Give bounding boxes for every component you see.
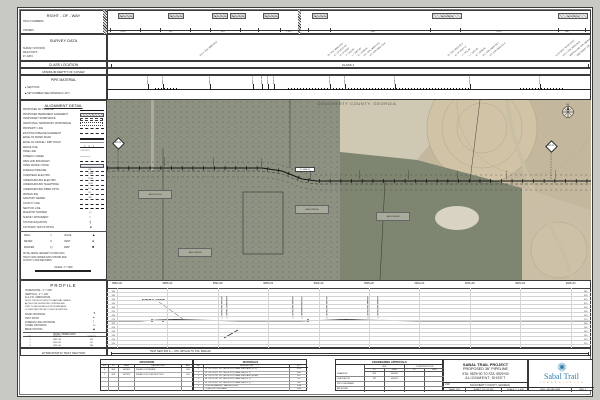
- profile-plot-graphics: [107, 280, 591, 348]
- owner-label-box: GA-DO-282.000: [295, 205, 329, 214]
- owner-label-box: GA-DO-280.000: [178, 248, 212, 257]
- sym-glyph: ┼: [89, 220, 91, 224]
- alignment-sheet-page: RIGHT - OF - WAY TRACT NUMBERS OWNERS SU…: [0, 0, 600, 400]
- crossing-label: IRRIGATION PIVOT TRACK: [301, 296, 304, 315]
- legend-symbol: [80, 127, 104, 131]
- sym-letter: OHE: [88, 173, 94, 175]
- pipe-callout-label: 9896+02 SET 1: [273, 76, 276, 85]
- sym-line: [80, 128, 104, 129]
- hydro-value: TEST SECTION 9 — STA. 9879+00 TO STA. 99…: [148, 350, 213, 353]
- profile-elevation-left: 290: [108, 311, 115, 313]
- row-label-right-of-way: RIGHT - OF - WAY TRACT NUMBERS OWNERS: [20, 10, 107, 34]
- sym-box: [80, 164, 104, 168]
- row-distance-label: 986': [560, 31, 574, 33]
- row-tick: [160, 28, 161, 33]
- legend2-label: DRIP: [64, 246, 70, 249]
- profile-elevation-left: 220: [108, 339, 115, 341]
- map-station-label: 9915+00: [457, 168, 460, 179]
- profile-note-line: NOTE: PROFILE DEPICTS NATURAL GRADE: [25, 300, 71, 302]
- profile-elevation-right: 330: [584, 295, 591, 297]
- profile-grid-horizontal: [107, 292, 591, 293]
- legend2-glyph: ●: [92, 239, 94, 243]
- row-distance-label: 3,214': [492, 31, 506, 33]
- row-tick: [190, 28, 191, 33]
- profile-station-label: 9925+00: [562, 282, 580, 285]
- crossing-label: EXISTING DIRT ROAD: [221, 296, 224, 315]
- row-tick: [110, 28, 111, 33]
- legend2-label: VENT: [64, 240, 70, 243]
- profile-legend-glyph: ●: [93, 316, 95, 319]
- legend-item-label: ADDITIONAL TEMPORARY WORKSPACE: [23, 122, 78, 125]
- pipe-callout-label: 9895+40 SET 2: [267, 76, 270, 85]
- profile-grid-horizontal: [107, 300, 591, 301]
- tract-numbers-sublabel: TRACT NUMBERS: [23, 20, 44, 23]
- hydro-baseline: [111, 353, 589, 354]
- legend-item-label: EDGE OF GRAVEL / DIRT ROAD: [23, 141, 78, 144]
- sym-scallop: ∩∩∩∩∩∩: [80, 149, 89, 152]
- profile-grid-vertical: [419, 288, 420, 348]
- legend-symbol: [80, 160, 104, 164]
- sabal-trail-starburst-icon: [557, 362, 567, 372]
- profile-info-box: PROFILE HORIZONTAL: 1" = 600' VERTICAL: …: [20, 280, 107, 348]
- row-tick: [330, 28, 331, 33]
- materials-table-cell: TOTAL PIPE THIS SHEET: [204, 388, 290, 391]
- profile-grid-horizontal: [107, 336, 591, 337]
- crossing-label: PROP. TEMP ACCESS ROAD: [226, 296, 229, 315]
- legend-symbol: [80, 136, 104, 140]
- profile-legend-label: CASED CROSSING: [25, 324, 47, 327]
- legend-item-label: COUNTY LINE: [23, 202, 78, 205]
- tract-number-box: GA-DO-282.000: [230, 13, 246, 19]
- profile-elevation-left: 320: [108, 299, 115, 301]
- compass-north-label: N: [567, 103, 569, 107]
- row-label-min-depth: MINIMUM DEPTH OF COVER: [20, 68, 107, 75]
- profile-grid-horizontal: [107, 340, 591, 341]
- sym-glyph: ◇: [89, 210, 91, 214]
- legend-item-label: UNDERGROUND FIBER OPTIC: [23, 188, 78, 191]
- approvals-cell: [404, 387, 424, 392]
- right-of-way-title: RIGHT - OF - WAY: [21, 13, 106, 18]
- legend-note-line: COUNTY LAND RECORDS.: [23, 260, 52, 262]
- scale-cell: SCALE: 1" = 600': [502, 387, 529, 392]
- profile-elevation-right: 280: [584, 315, 591, 317]
- crossing-label: EXISTING FIELD ROAD: [292, 296, 295, 315]
- profile-elevation-right: 240: [584, 331, 591, 333]
- sym-letter: UGT: [88, 183, 94, 185]
- pipe-callout-tick: [163, 84, 164, 90]
- profile-elevation-left: 330: [108, 295, 115, 297]
- approvals-cell: [424, 387, 444, 392]
- profile-grid-horizontal: [107, 344, 591, 345]
- legend-scale-bar: [35, 270, 91, 272]
- pipe-callout-label: 9889+62 SET 1: [209, 76, 212, 85]
- profile-station-label: 9915+00: [461, 282, 479, 285]
- survey-data-title: SURVEY DATA: [21, 38, 106, 43]
- legend-item-label: TEMPORARY WORKSPACE: [23, 117, 78, 120]
- profile-grid-vertical: [470, 288, 471, 348]
- row-tick: [585, 28, 586, 33]
- legend-symbol: ~~~~~~: [80, 155, 104, 159]
- sym-dot: [91, 128, 92, 129]
- legend-item-label: PROPOSED 36" PIPELINE: [23, 108, 78, 111]
- map-station-label: 9895+00: [261, 156, 264, 167]
- hydro-tick-right: [588, 352, 589, 356]
- map-station-label: 9885+00: [164, 155, 167, 166]
- map-station-label: 9905+00: [359, 168, 362, 179]
- row-label-class-location: CLASS LOCATION: [20, 61, 107, 68]
- materials-table-cell: 5,000': [290, 388, 308, 391]
- sym-line: [80, 199, 104, 200]
- profile-elevation-right: 340: [584, 291, 591, 293]
- profile-elevation-right: 300: [584, 307, 591, 309]
- row-label-survey-data: SURVEY DATA SURVEY STATIONS MILE POSTS P…: [20, 34, 107, 61]
- pipe-callout-label: 9922+91 SET 1: [539, 76, 542, 85]
- row-tick: [258, 28, 259, 33]
- sym-letter: FP: [88, 169, 92, 171]
- bore-table-cell: 9907+81: [37, 342, 77, 344]
- sym-line: [80, 204, 104, 205]
- profile-elevation-right: 250: [584, 327, 591, 329]
- profile-legend-label: TEST POINT: [25, 317, 39, 320]
- profile-station-label: 9890+00: [209, 282, 227, 285]
- bore-table-cell: 3: [23, 345, 37, 347]
- pipe-callout-tick: [395, 84, 396, 90]
- map-station-label: 9925+00: [555, 168, 558, 179]
- approvals-cell: [384, 387, 404, 392]
- profile-legend-glyph: ▼: [93, 312, 96, 315]
- map-station-label: 9900+00: [310, 168, 313, 179]
- profile-grid-horizontal: [107, 324, 591, 325]
- profile-station-label: 9880+00: [108, 282, 126, 285]
- legend-symbol: FO: [80, 188, 104, 192]
- legend-item-label: PROPOSED PERMANENT EASEMENT: [23, 113, 78, 116]
- bore-table-cell: 120': [77, 339, 106, 341]
- sym-glyph: ■: [90, 226, 92, 230]
- sym-line: [80, 194, 104, 195]
- legend2-label: METER: [24, 240, 32, 243]
- materials-table: MATERIALSSETDESCRIPTIONQTY.136" OD x 0.6…: [193, 359, 307, 391]
- map-dirt-road: [151, 100, 154, 170]
- map-station-label: 9910+00: [408, 168, 411, 179]
- pipe-callout-label: 9903+18 SET 2: [344, 76, 347, 85]
- profile-datum: N.A.V.D. 1988 DATUM: [25, 296, 50, 299]
- legend-item-label: PROPERTY LINE: [23, 127, 78, 130]
- pipe-callout-label: 9894+88 SET 3: [261, 76, 264, 85]
- profile-note-line: COVER PER PROJECT SPECIFICATIONS.: [25, 309, 68, 311]
- sym-line: [80, 175, 104, 176]
- pipe-callout-label: 9915+80 SET 2: [469, 76, 472, 85]
- owner-label-box: GA-DO-283.000: [376, 212, 410, 221]
- legend-symbol: [80, 117, 104, 121]
- pipe-callout-label: 9884+55 SET 2: [162, 76, 165, 85]
- sym-letter: FO: [88, 188, 92, 190]
- survey-stations-sublabel: SURVEY STATIONS: [23, 47, 45, 50]
- approvals-cell: [364, 387, 384, 392]
- profile-elevation-left: 210: [108, 343, 115, 345]
- rev-cell: REV: 1: [572, 387, 594, 392]
- legend-scale-text: SCALE: 1" = 600': [23, 266, 104, 269]
- profile-grid-horizontal: [107, 308, 591, 309]
- pipe-callout-tick: [345, 84, 346, 90]
- milepost-label-mp89: MP 89: [544, 145, 558, 147]
- legend-item-label: OPEN WATER / POND: [23, 164, 78, 167]
- logo-name: Sabal Trail: [529, 372, 594, 381]
- profile-station-label: 9905+00: [360, 282, 378, 285]
- logo-sub: T R A N S M I S S I O N: [529, 382, 594, 384]
- map-station-label: 9890+00: [213, 155, 216, 166]
- revisions-table-cell: [135, 387, 182, 392]
- profile-grid-horizontal: [107, 312, 591, 313]
- profile-elevation-right: 210: [584, 343, 591, 345]
- legend2-glyph: ■: [92, 245, 94, 249]
- survey-data-strip: P.O.T. STA. 9888+50.0P.I. STA. 9896+45.8…: [107, 34, 591, 61]
- legend2-glyph: ○: [50, 233, 52, 237]
- row-tick: [430, 28, 431, 33]
- row-baseline: [107, 30, 591, 31]
- legend-item-label: FENCE LINE: [23, 146, 78, 149]
- legend2-glyph: ▲: [92, 233, 95, 237]
- profile-elevation-left: 260: [108, 323, 115, 325]
- legend-symbol: [80, 113, 104, 117]
- pipe-callout-label: 9893+95 SET 3: [252, 76, 255, 85]
- legend2-glyph: ◇: [50, 245, 53, 249]
- pipe-callout-tick: [262, 84, 263, 90]
- profile-elevation-left: 280: [108, 315, 115, 317]
- profile-elevation-right: 270: [584, 319, 591, 321]
- crossing-label: EXISTING FARM DITCH: [367, 296, 370, 315]
- legend-item-label: STREAM / CREEK: [23, 155, 78, 158]
- pipe-material-dots: [288, 88, 470, 90]
- legend-symbol: [80, 207, 104, 211]
- pipe-callout-tick: [253, 84, 254, 90]
- sym-line: [80, 180, 104, 181]
- pipe-callout-tick: [330, 84, 331, 90]
- row-tick: [558, 28, 559, 33]
- sym-box: [80, 122, 103, 125]
- legend-item-label: WATER LINE: [23, 193, 78, 196]
- legend-note-line: NOTE: AERIAL IMAGERY FLOWN 2013.: [23, 253, 65, 255]
- sym-line: [80, 208, 104, 209]
- title-line-1: SABAL TRAIL PROJECT: [444, 362, 527, 367]
- legend-symbol: ■: [80, 226, 104, 230]
- profile-elevation-left: 240: [108, 331, 115, 333]
- profile-station-label: 9900+00: [310, 282, 328, 285]
- profile-elevation-right: 310: [584, 303, 591, 305]
- row-distance-label: 1,023': [116, 31, 130, 33]
- county-label: DOUGHERTY COUNTY, GEORGIA: [282, 101, 432, 106]
- profile-grid-vertical: [218, 288, 219, 348]
- crossing-label: EXISTING FIELD ROAD: [377, 296, 380, 315]
- materials-table-cell: [194, 388, 204, 391]
- hydro-title: HYDROSTATIC TEST SECTION: [21, 349, 106, 357]
- year-cell: YEAR: 2017: [444, 387, 466, 392]
- tract-number-box: GA-DO-280.000: [168, 13, 184, 19]
- profile-elevation-left: 270: [108, 319, 115, 321]
- row-tick: [210, 28, 211, 33]
- bore-table-colhead: STATION: [37, 336, 77, 338]
- legend-item-label: WETLAND BOUNDARY: [23, 160, 78, 163]
- tract-number-box: GA-DO-279.000: [118, 13, 134, 19]
- map-pond: [435, 206, 479, 230]
- owner-label-box: GA-DO-279.000: [138, 190, 172, 199]
- legend2-label: WELL: [24, 234, 31, 237]
- legend-symbol: W: [80, 193, 104, 197]
- profile-grid-vertical: [571, 288, 572, 348]
- row-distance-label: 418': [216, 31, 230, 33]
- approvals-table: ENGINEERING APPROVALSBIDCONSTRUCTIONBYDA…: [335, 359, 443, 391]
- sym-line: [80, 142, 104, 143]
- row-tick: [240, 28, 241, 33]
- profile-grid-horizontal: [107, 320, 591, 321]
- revisions-table-cell: [109, 387, 119, 392]
- legend-item-label: EDGE OF PAVED ROAD: [23, 136, 78, 139]
- sym-line: [80, 185, 104, 186]
- bore-table-cell: 140': [77, 345, 106, 347]
- profile-legend-glyph: ▭: [93, 324, 95, 327]
- row-label-pipe-material: PIPE MATERIAL ● SECTIONS ■ SET NUMBER (S…: [20, 75, 107, 100]
- hydro-tick-left: [111, 352, 112, 356]
- legend-symbol: SS: [80, 197, 104, 201]
- legend-symbol: ··: [80, 202, 104, 206]
- legend-item-label: STATION EQUATION: [23, 221, 78, 224]
- pipe-callout-tick: [268, 84, 269, 90]
- title-block: SABAL TRAIL PROJECT PROPOSED 36" PIPELIN…: [443, 359, 528, 391]
- legend-symbol: [80, 164, 104, 168]
- class-location-strip: CLASS 1: [107, 61, 591, 68]
- sym-line: [80, 161, 104, 162]
- sym-line: [80, 133, 104, 134]
- profile-station-label: 9910+00: [410, 282, 428, 285]
- tract-number-box: GA-DO-283.000: [263, 13, 279, 19]
- pipe-callout-tick: [470, 84, 471, 90]
- survey-annotation: P.O.T. STA. 9888+50.0: [200, 41, 218, 57]
- hydro-strip: TEST SECTION 9 — STA. 9879+00 TO STA. 99…: [107, 348, 591, 356]
- legend-item-label: TREE LINE: [23, 150, 78, 153]
- pipe-callout-label: 9908+25 SET 1: [394, 76, 397, 85]
- profile-station-label: 9895+00: [259, 282, 277, 285]
- profile-grid-horizontal: [107, 316, 591, 317]
- legend-symbol: ○: [80, 216, 104, 220]
- pipe-material-bullet-set: ■ SET NUMBER (SEE MATERIALS LIST): [25, 92, 70, 95]
- revisions-table-cell: [119, 387, 135, 392]
- sym-line: [80, 171, 104, 172]
- legend-symbol: ┼: [80, 221, 104, 225]
- legend-symbol: [80, 132, 104, 136]
- mile-posts-sublabel: MILE POSTS: [23, 51, 37, 54]
- profile-grid-horizontal: [107, 304, 591, 305]
- title-line-4: ALIGNMENT SHEET: [444, 376, 527, 380]
- title-line-3: STA. 9879+00 TO STA. 9929+00: [444, 372, 527, 376]
- profile-elevation-left: 230: [108, 335, 115, 337]
- sym-letter: SS: [88, 197, 92, 199]
- row-tick: [140, 28, 141, 33]
- legend-divider: [20, 231, 107, 232]
- profile-elevation-left: 310: [108, 303, 115, 305]
- bore-table-cell: 9891+58: [37, 339, 77, 341]
- profile-grid-vertical: [268, 288, 269, 348]
- owners-sublabel: OWNERS: [23, 29, 34, 32]
- approvals-row-label: APPROVED: [336, 387, 364, 392]
- legend-note-line: TRACT AND OWNER DATA SHOWN PER: [23, 257, 67, 259]
- legend-item-label: SANITARY SEWER: [23, 197, 78, 200]
- legend2-label: MARKER: [24, 246, 34, 249]
- legend2-label: VALVE: [64, 234, 71, 237]
- bore-table-cell: 95': [77, 342, 106, 344]
- hydro-label-cell: HYDROSTATIC TEST SECTION: [20, 348, 107, 356]
- sym-line: [80, 189, 104, 190]
- profile-station-label: 9920+00: [511, 282, 529, 285]
- profile-elevation-right: 320: [584, 299, 591, 301]
- legend-item-label: SURVEY MONUMENT: [23, 216, 78, 219]
- pipe-callout-tick: [274, 84, 275, 90]
- title-line-2: PROPOSED 36" PIPELINE: [444, 367, 527, 371]
- pipe-callout-tick: [540, 84, 541, 90]
- revisions-table: REVISIONSNO.BYDATEDESCRIPTIONAPP.0MJF04/…: [100, 359, 193, 391]
- profile-legend-label: BEND STATION: [25, 328, 42, 331]
- profile-grid-vertical: [319, 288, 320, 348]
- dwg-cell: DWG: SBT-AS-0088: [529, 387, 572, 392]
- profile-elevation-right: 230: [584, 335, 591, 337]
- pipe-material-dots: [155, 88, 178, 90]
- row-distance-label: 2,847': [366, 31, 380, 33]
- row-distance-label: 612': [164, 31, 178, 33]
- profile-note-line: ALONG THE SURVEYED CENTERLINE.: [25, 303, 65, 305]
- sym-letter: W: [88, 192, 91, 194]
- pipe-material-dots: [520, 88, 565, 90]
- min-depth-strip: [107, 68, 591, 75]
- bore-table-colhead: NO.: [23, 336, 37, 338]
- sym-box: [80, 113, 104, 117]
- row-distance-label: 1,495': [282, 31, 296, 33]
- pipe-material-bullet-sections: ● SECTIONS: [25, 86, 39, 89]
- profile-legend-glyph: |: [93, 320, 94, 323]
- profile-elevation-right: 290: [584, 311, 591, 313]
- row-tick: [460, 28, 461, 33]
- profile-grid-horizontal: [107, 332, 591, 333]
- bore-table-cell: 2: [23, 342, 37, 344]
- pipe-callout-label: 9883+10 SET 1: [147, 76, 150, 85]
- revisions-table-cell: [101, 387, 109, 392]
- logo-block: Sabal Trail T R A N S M I S S I O N DWG:…: [528, 359, 593, 391]
- sym-dots: ··: [89, 203, 90, 205]
- legend-symbol: [80, 108, 104, 112]
- profile-elevation-left: 250: [108, 327, 115, 329]
- row-tick: [308, 28, 309, 33]
- profile-note-line: PIPE TO BE INSTALLED WITH MINIMUM: [25, 306, 66, 308]
- legend-item-label: SECTION LINE: [23, 207, 78, 210]
- sym-line: [80, 110, 104, 111]
- profile-elevation-right: 220: [584, 339, 591, 341]
- profile-grid-vertical: [117, 288, 118, 348]
- profile-elevation-left: 300: [108, 307, 115, 309]
- sym-letter: UGE: [88, 178, 94, 180]
- profile-legend-label: ROAD CROSSING: [25, 313, 45, 316]
- sym-wave: ~~~~~~: [80, 154, 91, 158]
- tract-number-box: GA-DO-285.000: [432, 13, 462, 19]
- profile-elevation-left: 340: [108, 291, 115, 293]
- profile-grid-vertical: [167, 288, 168, 348]
- bore-table-colhead: LENGTH: [77, 336, 106, 338]
- class-tick-left: [111, 64, 112, 68]
- class-tick-right: [588, 64, 589, 68]
- profile-legend-label: FOREIGN LINE CROSSING: [25, 321, 55, 324]
- bore-table-cell: 9921+40: [37, 345, 77, 347]
- legend-item-label: OVERHEAD ELECTRIC: [23, 174, 78, 177]
- profile-station-label: 9885+00: [158, 282, 176, 285]
- legend-item-label: FOREIGN PIPELINE: [23, 169, 78, 172]
- map-station-label: 9920+00: [506, 168, 509, 179]
- profile-grid-horizontal: [107, 328, 591, 329]
